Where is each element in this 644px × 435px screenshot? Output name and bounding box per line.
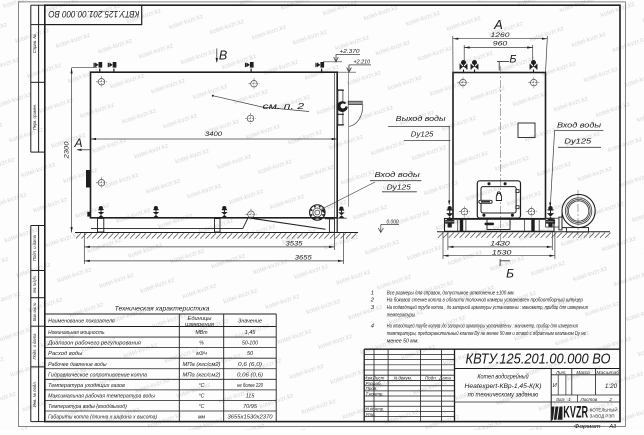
svg-text:м3/ч: м3/ч [196, 351, 207, 357]
svg-text:%: % [199, 341, 204, 347]
svg-text:Лит.: Лит. [555, 370, 567, 375]
svg-text:Температура воды (вход/выход): Температура воды (вход/выход) [48, 404, 127, 410]
svg-text:°С: °С [199, 404, 205, 410]
svg-text:КОТЕЛЬНЫЙ: КОТЕЛЬНЫЙ [590, 407, 618, 412]
svg-text:0,6 (6,0): 0,6 (6,0) [238, 362, 262, 368]
svg-text:Масштаб: Масштаб [596, 370, 619, 375]
svg-text:Справ. №: Справ. № [32, 34, 37, 53]
svg-text:Взам. инв. №: Взам. инв. № [32, 302, 37, 321]
svg-text:Подп. и дата: Подп. и дата [32, 234, 37, 261]
svg-text:МПа (кгс/см2): МПа (кгс/см2) [183, 372, 221, 378]
svg-text:N докум.: N докум. [394, 375, 412, 380]
svg-text:3400: 3400 [205, 132, 223, 138]
svg-text:B: B [219, 48, 227, 62]
svg-text:Heatexpert-КВр-1,45-К(К): Heatexpert-КВр-1,45-К(К) [465, 383, 542, 390]
svg-text:1430: 1430 [490, 242, 510, 248]
svg-text:Инв. № дубл.: Инв. № дубл. [32, 276, 37, 293]
svg-text:На подводящей трубе котла ,: На подводящей трубе котла , до запорной … [387, 304, 588, 311]
svg-text:Подп. и дата: Подп. и дата [32, 333, 37, 360]
svg-text:50-100: 50-100 [242, 341, 259, 347]
svg-text:КВТУ.125.201.00.000 ВО: КВТУ.125.201.00.000 ВО [466, 351, 611, 368]
svg-text:МВт: МВт [195, 330, 208, 336]
svg-text:+2.370: +2.370 [340, 49, 360, 55]
svg-text:Лист: Лист [372, 375, 385, 380]
svg-text:Рабочее давление воды: Рабочее давление воды [48, 362, 107, 368]
svg-text:Диапазон рабочего регулировани: Диапазон рабочего регулирования [47, 341, 141, 347]
svg-text:менее 50 мм.: менее 50 мм. [387, 338, 419, 344]
svg-text:не более 220: не более 220 [237, 383, 264, 389]
svg-text:МПа (кгс/см2): МПа (кгс/см2) [183, 362, 221, 368]
svg-text:Техническая характеристика: Техническая характеристика [115, 307, 211, 313]
svg-text:KVZR: KVZR [563, 402, 588, 421]
svg-text:Наименование показателя: Наименование показателя [48, 318, 115, 324]
svg-text:A: A [73, 136, 82, 150]
svg-text:960: 960 [493, 42, 508, 48]
svg-text:2: 2 [608, 397, 612, 402]
svg-text:На боковой стенке котла в обла: На боковой стенке котла в области топочн… [387, 296, 584, 303]
svg-text:ЗАВОД РЭП: ЗАВОД РЭП [590, 413, 615, 418]
svg-text:70/95: 70/95 [243, 404, 258, 410]
svg-text:Котел водогрейный: Котел водогрейный [477, 374, 529, 381]
svg-text:Максимальная рабочая температу: Максимальная рабочая температура воды [48, 394, 155, 400]
svg-text:Инв. № подл.: Инв. № подл. [32, 381, 37, 407]
svg-text:Расход воды: Расход воды [48, 351, 82, 357]
svg-text:115: 115 [246, 394, 256, 400]
svg-text:1: 1 [371, 291, 374, 297]
svg-text:Листов: Листов [579, 397, 597, 402]
svg-text:измерения: измерения [185, 322, 214, 328]
svg-text:А: А [493, 17, 503, 32]
svg-text:см. п. 2: см. п. 2 [263, 101, 305, 111]
svg-text:°С: °С [199, 383, 205, 389]
svg-text:Гидравлическое сопротивление к: Гидравлическое сопротивление котла [48, 372, 147, 378]
svg-text:КВТУ.125.201.00.000 ВО: КВТУ.125.201.00.000 ВО [48, 8, 140, 19]
svg-text:Вход воды: Вход воды [375, 170, 421, 179]
svg-text:по техническому заданию: по техническому заданию [468, 391, 539, 398]
svg-text:Перв. примен.: Перв. примен. [32, 104, 37, 130]
svg-text:На отводящей трубе котла ,до з: На отводящей трубе котла ,до запорной ар… [387, 323, 578, 330]
svg-text:А3: А3 [609, 424, 617, 430]
svg-text:Подп.: Подп. [425, 375, 437, 380]
svg-text:Лист: Лист [555, 397, 564, 402]
svg-text:Dy125: Dy125 [411, 129, 434, 138]
svg-text:2300: 2300 [65, 141, 71, 160]
svg-text:мм: мм [198, 415, 206, 421]
svg-text:50: 50 [247, 351, 254, 357]
svg-text:1530: 1530 [492, 250, 512, 256]
svg-text:Т.контр.: Т.контр. [366, 391, 384, 396]
svg-text:температуры.: температуры. [387, 313, 416, 319]
svg-text:1:20: 1:20 [605, 383, 618, 390]
svg-text:Значение: Значение [238, 318, 262, 324]
svg-text:Dy125: Dy125 [387, 182, 412, 191]
svg-text:Утв.: Утв. [366, 412, 376, 417]
svg-text:Габариты котла (длинна х ширин: Габариты котла (длинна х ширина х высота… [48, 415, 157, 421]
svg-text:0,06 (0,6): 0,06 (0,6) [237, 372, 263, 378]
svg-text:Б: Б [506, 267, 514, 281]
svg-text:Номинальная мощность: Номинальная мощность [48, 330, 105, 336]
svg-text:Дата: Дата [438, 375, 451, 380]
svg-text:4: 4 [371, 324, 374, 330]
svg-text:3655х1530х2370: 3655х1530х2370 [228, 415, 274, 421]
svg-text:Вход воды: Вход воды [557, 121, 602, 130]
svg-text:3535: 3535 [286, 241, 304, 247]
svg-text:Dy125: Dy125 [564, 137, 592, 146]
svg-text:Все размеры для справок, допус: Все размеры для справок, допустимое откл… [387, 291, 515, 297]
svg-text:1,45: 1,45 [245, 330, 257, 336]
svg-text:Выход воды: Выход воды [396, 114, 446, 123]
svg-text:3655: 3655 [295, 255, 313, 261]
svg-text:°С: °С [199, 394, 205, 400]
svg-text:Б: Б [509, 54, 516, 66]
svg-text:1260: 1260 [491, 33, 511, 39]
svg-text:температуры, предохранительный: температуры, предохранительный клапан Dу… [387, 330, 587, 337]
svg-text:Температура уходящих газов: Температура уходящих газов [48, 383, 125, 389]
svg-text:Формат: Формат [574, 424, 601, 430]
svg-text:+2.210: +2.210 [354, 60, 371, 66]
svg-text:Масса: Масса [576, 370, 590, 375]
